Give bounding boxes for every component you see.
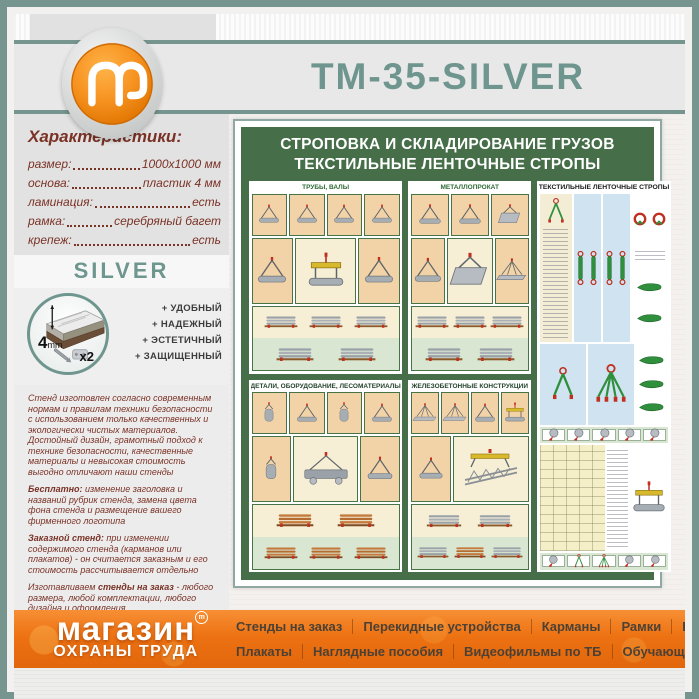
frame-thickness-label: 4mm [38, 334, 62, 354]
footer-menu-row-2: ПлакатыНаглядные пособияВидеофильмы по Т… [226, 644, 681, 659]
characteristic-row: ламинация:есть [28, 193, 221, 212]
panel-illustrations [251, 391, 401, 571]
screws-count-label: x2 [80, 349, 94, 364]
panel-header: ТЕКСТИЛЬНЫЕ ЛЕНТОЧНЫЕ СТРОПЫ [539, 183, 670, 193]
footer-banner: магазинm ОХРАНЫ ТРУДА Стенды на заказПер… [14, 610, 685, 668]
poster-panel-metal: МЕТАЛЛОПРОКАТ [408, 181, 531, 374]
bottom-decor-strip [14, 668, 685, 699]
footer-menu: Стенды на заказПерекидные устройстваКарм… [226, 610, 681, 668]
panel-illustrations [410, 391, 530, 571]
footer-menu-item[interactable]: Багет [671, 619, 685, 634]
footer-menu-item[interactable]: Обучающие программы [612, 644, 686, 659]
description-paragraph: Бесплатно: изменение заголовка и названи… [28, 484, 219, 526]
feature-item: + УДОБНЫЙ [135, 301, 222, 317]
description-paragraph: Заказной стенд: при изменении содержимог… [28, 533, 219, 575]
brand-m-logo-icon [62, 28, 162, 139]
panel-header: ЖЕЛЕЗОБЕТОННЫЕ КОНСТРУКЦИИ [410, 381, 530, 391]
panel-header: МЕТАЛЛОПРОКАТ [410, 183, 530, 193]
frame-cross-section-icon: 4mm x2 [27, 293, 109, 375]
characteristic-row: рамка:серебряный багет [28, 212, 221, 231]
footer-menu-item[interactable]: Наглядные пособия [302, 644, 453, 659]
poster-panel-pipes: ТРУБЫ, ВАЛЫ [249, 181, 402, 374]
footer-menu-item[interactable]: Стенды на заказ [226, 619, 352, 634]
page-title: ТМ-35-SILVER [219, 44, 677, 110]
poster-panel-grid: ТРУБЫ, ВАЛЫ [249, 181, 646, 572]
panel-illustrations [410, 193, 530, 373]
footer-menu-item[interactable]: Рамки [610, 619, 671, 634]
store-logo[interactable]: магазинm ОХРАНЫ ТРУДА [28, 613, 224, 660]
panel-header: ТРУБЫ, ВАЛЫ [251, 183, 401, 193]
poster-inner: СТРОПОВКА И СКЛАДИРОВАНИЕ ГРУЗОВ ТЕКСТИЛ… [241, 127, 654, 580]
product-page: ТМ-35-SILVER Характеристики: размер:1000… [0, 0, 699, 699]
footer-menu-item[interactable]: Карманы [531, 619, 611, 634]
sidebar: Характеристики: размер:1000х1000 ммоснов… [14, 114, 229, 610]
feature-list: + УДОБНЫЙ+ НАДЕЖНЫЙ+ ЭСТЕТИЧНЫЙ+ ЗАЩИЩЕН… [135, 301, 222, 365]
frame-type-label: SILVER [14, 255, 229, 288]
characteristic-row: размер:1000х1000 мм [28, 155, 221, 174]
feature-item: + НАДЕЖНЫЙ [135, 317, 222, 333]
footer-menu-item[interactable]: Видеофильмы по ТБ [453, 644, 611, 659]
panel-header: ДЕТАЛИ, ОБОРУДОВАНИЕ, ЛЕСОМАТЕРИАЛЫ [251, 381, 401, 391]
poster-title: СТРОПОВКА И СКЛАДИРОВАНИЕ ГРУЗОВ ТЕКСТИЛ… [249, 135, 646, 175]
characteristic-row: основа:пластик 4 мм [28, 174, 221, 193]
feature-item: + ЗАЩИЩЕННЫЙ [135, 349, 222, 365]
footer-menu-row-1: Стенды на заказПерекидные устройстваКарм… [226, 619, 681, 634]
poster-image: СТРОПОВКА И СКЛАДИРОВАНИЕ ГРУЗОВ ТЕКСТИЛ… [233, 119, 662, 588]
characteristics-list: размер:1000х1000 ммоснова:пластик 4 ммла… [28, 155, 221, 250]
poster-panel-textile-slings: ТЕКСТИЛЬНЫЕ ЛЕНТОЧНЫЕ СТРОПЫ [537, 181, 671, 572]
feature-item: + ЭСТЕТИЧНЫЙ [135, 333, 222, 349]
poster-panel-concrete: ЖЕЛЕЗОБЕТОННЫЕ КОНСТРУКЦИИ [408, 380, 531, 573]
store-logo-line1: магазинm [57, 613, 195, 645]
description-text: Стенд изготовлен согласно современным но… [14, 385, 229, 610]
poster-panel-details-equipment: ДЕТАЛИ, ОБОРУДОВАНИЕ, ЛЕСОМАТЕРИАЛЫ [249, 380, 402, 573]
description-paragraph: Изготавливаем стенды на заказ - любого р… [28, 582, 219, 610]
registered-mark-icon: m [195, 611, 208, 624]
description-paragraph: Стенд изготовлен согласно современным но… [28, 393, 219, 477]
poster-title-line1: СТРОПОВКА И СКЛАДИРОВАНИЕ ГРУЗОВ [249, 135, 646, 155]
frame-info-panel: 4mm x2 + УДОБНЫЙ+ НАДЕЖНЫЙ+ ЭСТЕТИЧНЫЙ+ … [14, 288, 229, 385]
panel-illustrations [251, 193, 401, 373]
poster-title-line2: ТЕКСТИЛЬНЫЕ ЛЕНТОЧНЫЕ СТРОПЫ [249, 155, 646, 175]
footer-menu-item[interactable]: Плакаты [226, 644, 302, 659]
panel-illustrations [539, 193, 670, 571]
footer-menu-item[interactable]: Перекидные устройства [352, 619, 530, 634]
characteristic-row: крепеж:есть [28, 231, 221, 250]
